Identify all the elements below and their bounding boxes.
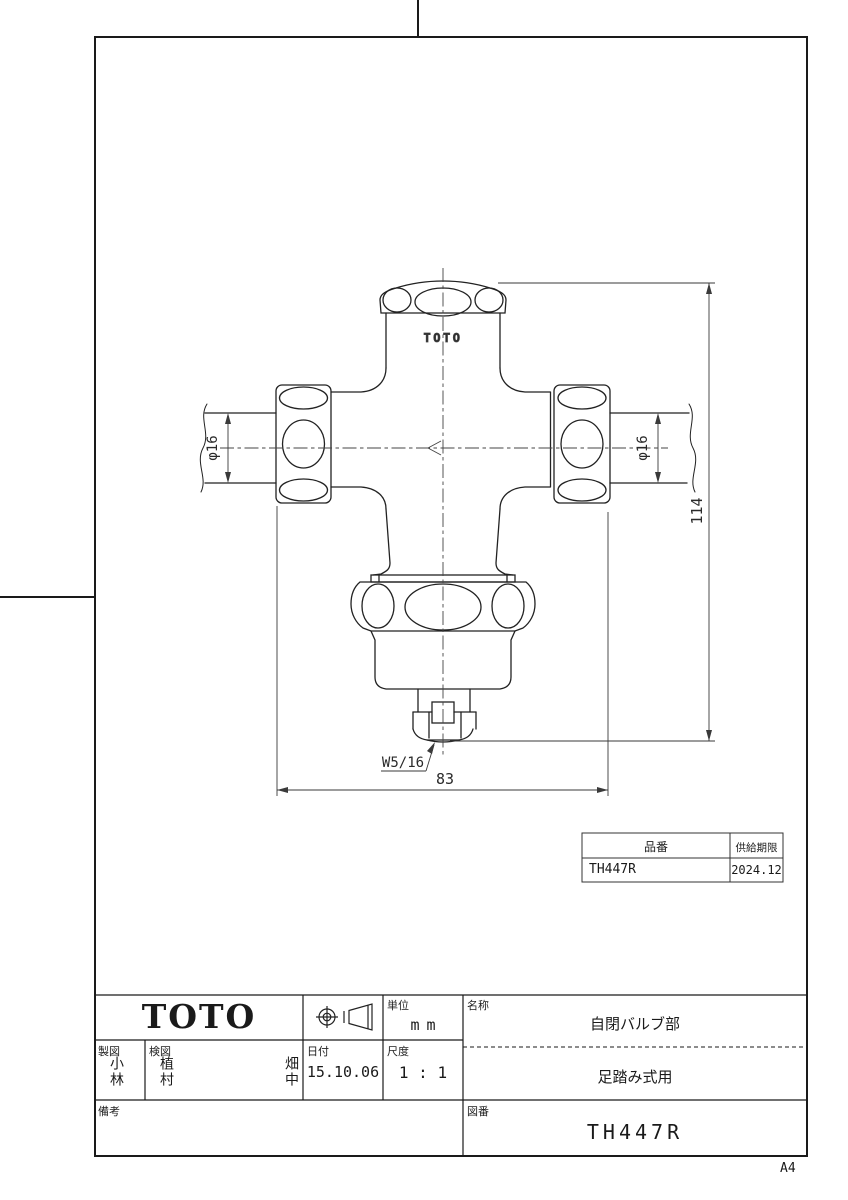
hex-fitting — [413, 689, 476, 742]
drawing-number-label: 図番 — [467, 1103, 489, 1119]
dim-height: 114 — [688, 497, 706, 524]
dimension-arrows — [225, 283, 712, 793]
checked-value-2: 畑中 — [282, 1056, 302, 1088]
remarks-label: 備考 — [98, 1103, 120, 1119]
unit-label: 単位 — [387, 997, 409, 1013]
checked-value-1: 植村 — [157, 1056, 177, 1088]
part-table-part-number: TH447R — [589, 862, 636, 877]
drafted-value: 小林 — [107, 1056, 127, 1088]
dim-right-diameter: φ16 — [635, 435, 651, 460]
first-angle-projection-icon — [316, 1004, 372, 1030]
dim-left-diameter: φ16 — [205, 435, 221, 460]
dim-thread: W5/16 — [382, 755, 424, 771]
name-sub-value: 足踏み式用 — [463, 1066, 807, 1087]
drawing-sheet: TOTO — [0, 0, 848, 1200]
unit-value: mm — [383, 1016, 463, 1034]
scale-label: 尺度 — [387, 1043, 409, 1059]
sheet-border — [0, 0, 807, 1156]
part-table-header-partno: 品番 — [582, 838, 730, 855]
right-coupling-nut — [551, 385, 611, 503]
scale-value: 1 : 1 — [383, 1063, 463, 1082]
date-label: 日付 — [307, 1043, 329, 1059]
part-table-supply-deadline: 2024.12 — [730, 863, 783, 877]
name-label: 名称 — [467, 997, 489, 1013]
name-value: 自閉バルブ部 — [463, 1013, 807, 1034]
left-coupling-nut — [276, 385, 331, 503]
sheet-size-label: A4 — [780, 1161, 796, 1176]
dim-width: 83 — [436, 770, 454, 788]
toto-logo: TOTO — [95, 997, 303, 1036]
valve-outline — [200, 281, 695, 742]
part-table-header-deadline: 供給期限 — [730, 840, 783, 855]
drawing-number-value: TH447R — [463, 1120, 807, 1144]
dimension-lines — [228, 283, 715, 796]
date-value: 15.10.06 — [303, 1063, 383, 1081]
